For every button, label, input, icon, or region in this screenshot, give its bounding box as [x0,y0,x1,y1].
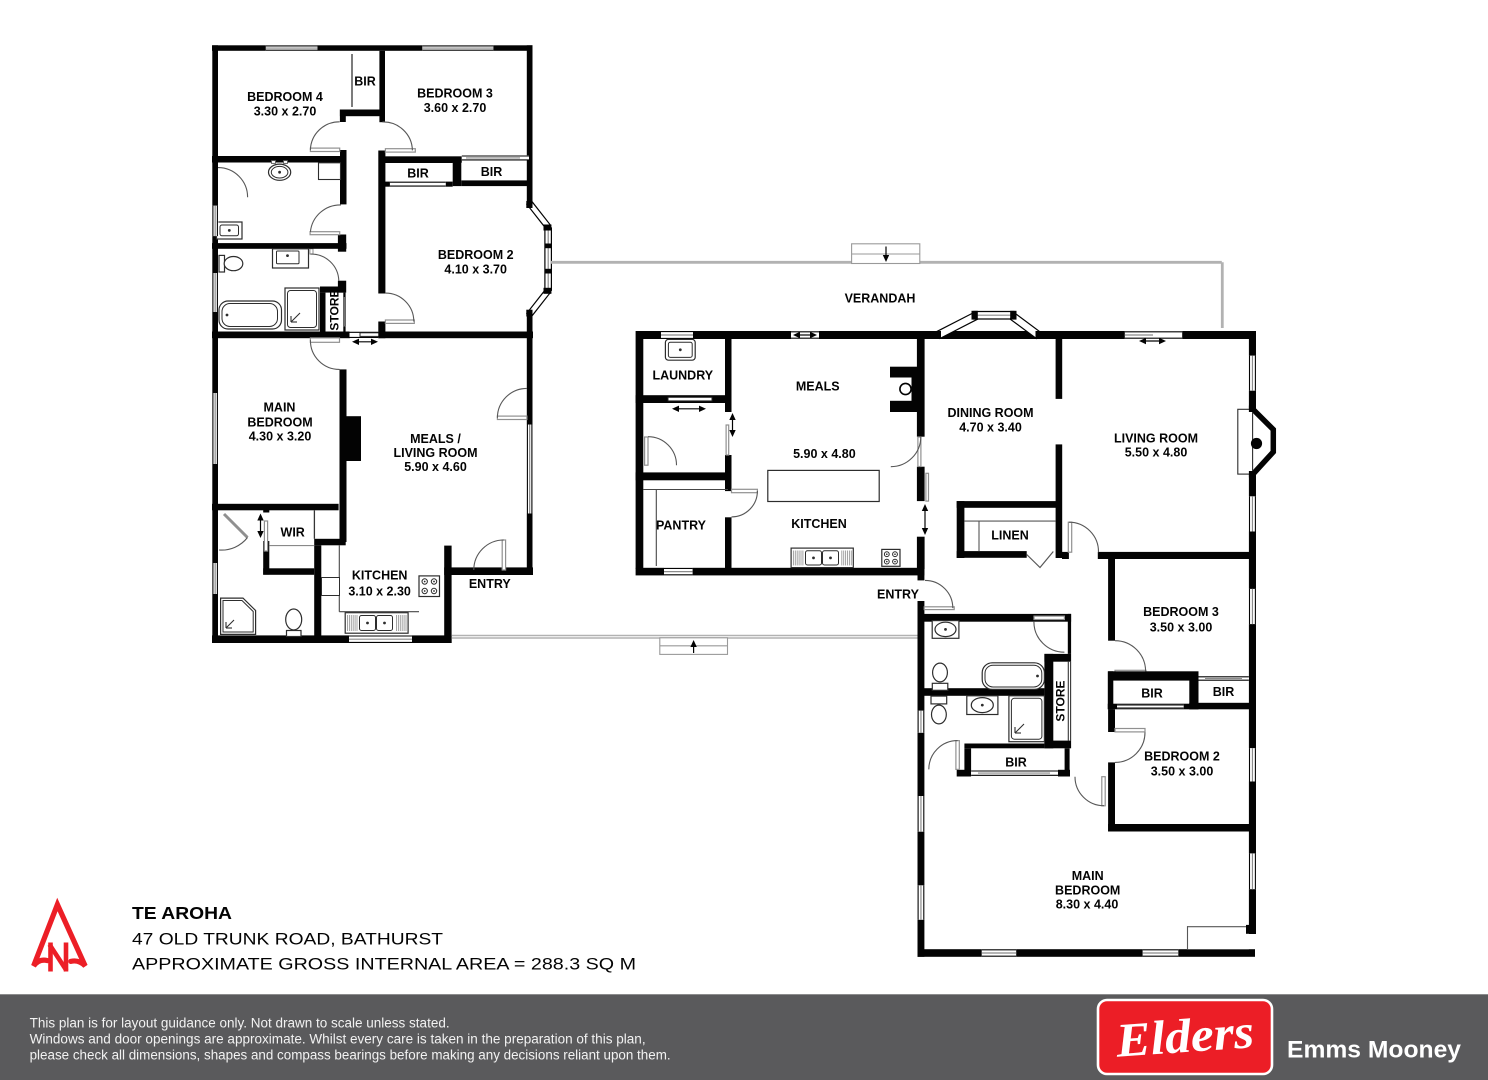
svg-text:47 OLD TRUNK ROAD, BATHURST: 47 OLD TRUNK ROAD, BATHURST [132,930,443,949]
svg-text:LIVING ROOM: LIVING ROOM [393,446,477,460]
svg-text:BEDROOM 3: BEDROOM 3 [1143,605,1219,619]
svg-text:BEDROOM: BEDROOM [247,416,312,430]
svg-text:PANTRY: PANTRY [656,519,707,533]
svg-text:TE AROHA: TE AROHA [132,903,232,923]
svg-text:BIR: BIR [407,167,429,181]
svg-text:BEDROOM: BEDROOM [1055,884,1120,898]
svg-text:BIR: BIR [481,165,503,179]
svg-text:3.60 x 2.70: 3.60 x 2.70 [424,101,487,115]
svg-text:3.30 x 2.70: 3.30 x 2.70 [254,105,317,119]
svg-text:3.50 x 3.00: 3.50 x 3.00 [1151,765,1214,779]
svg-text:LINEN: LINEN [991,529,1029,543]
svg-text:3.50 x 3.00: 3.50 x 3.00 [1150,621,1213,635]
svg-text:KITCHEN: KITCHEN [791,517,847,531]
svg-text:STORE: STORE [328,289,342,330]
svg-text:4.30 x 3.20: 4.30 x 3.20 [249,430,312,444]
svg-text:Emms Mooney: Emms Mooney [1287,1037,1461,1064]
svg-text:5.90 x 4.60: 5.90 x 4.60 [404,460,467,474]
svg-text:4.10 x 3.70: 4.10 x 3.70 [444,263,507,277]
svg-text:8.30 x 4.40: 8.30 x 4.40 [1056,898,1119,912]
svg-text:WIR: WIR [281,526,305,540]
svg-text:This plan is for layout guidan: This plan is for layout guidance only. N… [30,1016,450,1031]
svg-text:BIR: BIR [1141,687,1163,701]
svg-text:BEDROOM 4: BEDROOM 4 [247,90,323,104]
svg-text:APPROXIMATE GROSS INTERNAL ARE: APPROXIMATE GROSS INTERNAL AREA = 288.3 … [132,955,636,974]
svg-text:MEALS /: MEALS / [410,432,461,446]
svg-text:LAUNDRY: LAUNDRY [652,369,713,383]
svg-text:MAIN: MAIN [1072,869,1104,883]
svg-text:BIR: BIR [1213,685,1235,699]
svg-text:ENTRY: ENTRY [877,588,920,602]
svg-text:BIR: BIR [1005,756,1027,770]
svg-text:Elders: Elders [1113,1005,1255,1068]
svg-text:please check all dimensions, s: please check all dimensions, shapes and … [30,1048,671,1063]
svg-text:DINING ROOM: DINING ROOM [947,406,1033,420]
svg-text:ENTRY: ENTRY [469,577,512,591]
svg-text:BIR: BIR [354,75,376,89]
svg-text:Windows and door openings are: Windows and door openings are approximat… [30,1032,646,1047]
svg-text:STORE: STORE [1054,680,1068,721]
svg-text:KITCHEN: KITCHEN [352,569,408,583]
svg-text:4.70 x 3.40: 4.70 x 3.40 [959,421,1022,435]
svg-text:BEDROOM 2: BEDROOM 2 [438,248,514,262]
svg-text:MEALS: MEALS [796,380,840,394]
svg-text:5.50 x 4.80: 5.50 x 4.80 [1125,445,1188,459]
svg-text:BEDROOM 3: BEDROOM 3 [417,87,493,101]
svg-text:LIVING ROOM: LIVING ROOM [1114,432,1198,446]
svg-text:3.10 x 2.30: 3.10 x 2.30 [348,584,411,598]
svg-text:BEDROOM 2: BEDROOM 2 [1144,750,1220,764]
svg-text:VERANDAH: VERANDAH [845,292,916,306]
svg-text:5.90 x 4.80: 5.90 x 4.80 [793,447,856,461]
svg-text:MAIN: MAIN [264,401,296,415]
